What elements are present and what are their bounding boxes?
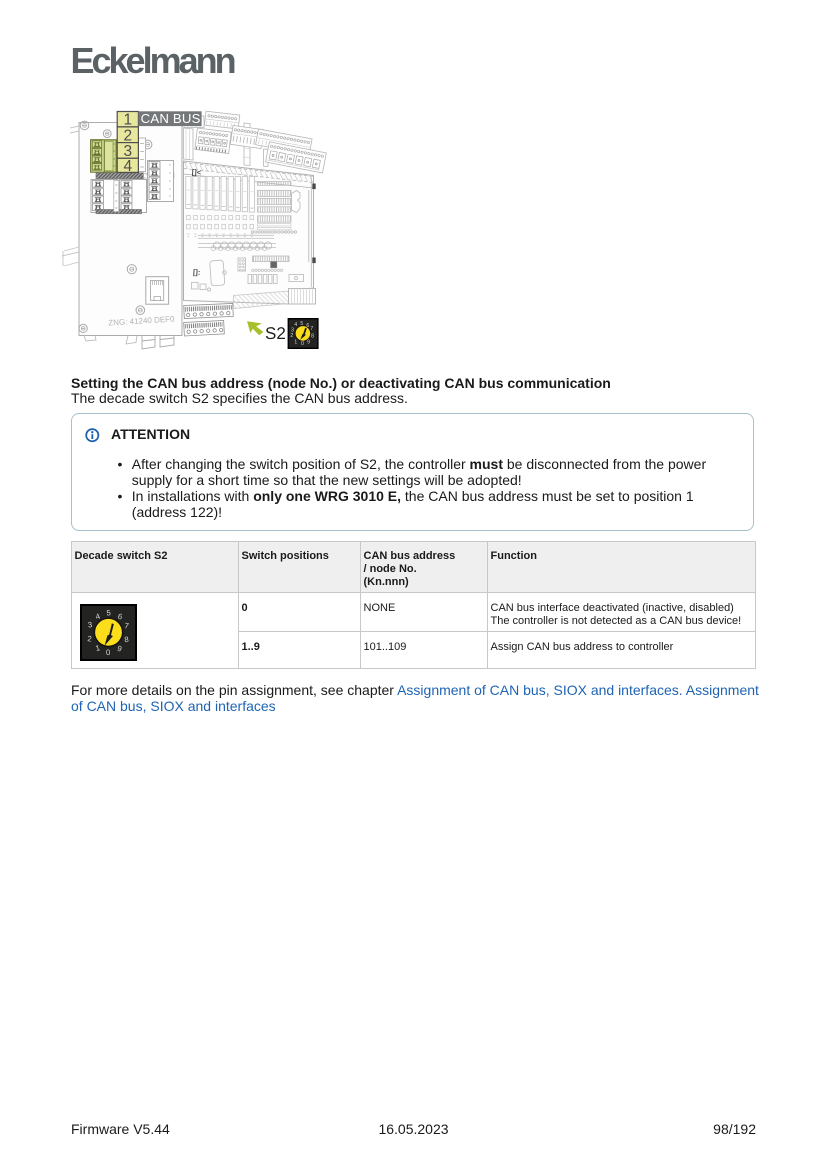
svg-text:2: 2: [123, 127, 132, 144]
svg-text:5: 5: [300, 321, 303, 327]
svg-text:2: 2: [87, 634, 92, 643]
svg-text:[]:: []:: [193, 268, 201, 277]
svg-text:6: 6: [306, 323, 309, 329]
svg-text:8: 8: [311, 334, 314, 340]
svg-text:8: 8: [124, 635, 129, 644]
svg-text:0: 0: [301, 341, 304, 347]
svg-text:1: 1: [294, 340, 297, 346]
svg-text:7: 7: [310, 326, 313, 332]
svg-text:CAN BUS: CAN BUS: [141, 111, 201, 126]
svg-text:9: 9: [307, 340, 310, 346]
svg-text:4: 4: [294, 322, 297, 328]
svg-text:[]<: []<: [192, 167, 202, 177]
svg-text:2: 2: [290, 333, 293, 339]
svg-text:S2: S2: [265, 324, 286, 343]
svg-text:1: 1: [123, 112, 132, 129]
svg-text:4: 4: [123, 158, 132, 175]
